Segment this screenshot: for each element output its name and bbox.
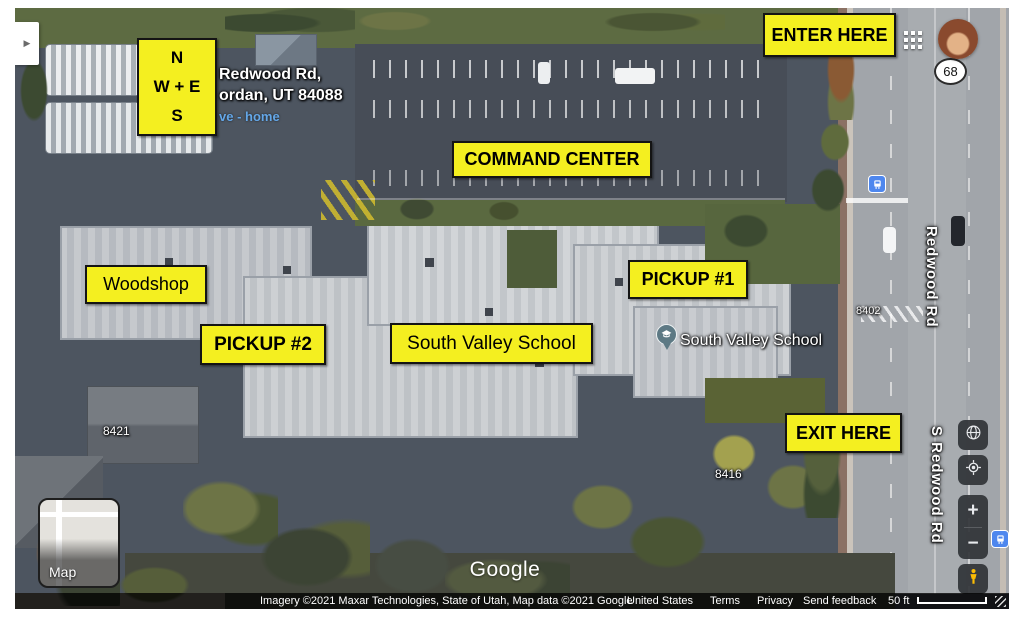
scale-bar [917,597,987,604]
stop-line [846,198,908,203]
school-place-marker[interactable] [656,324,677,345]
privacy-link[interactable]: Privacy [757,595,793,607]
annotation-south-valley-school: South Valley School [390,323,593,364]
scale-label[interactable]: 50 ft [888,595,909,607]
tree [820,48,862,120]
parking-stalls [373,100,773,118]
annotation-pickup-1: PICKUP #1 [628,260,748,299]
zoom-control: + − [958,495,988,559]
small-roof-building [255,34,317,66]
house-number: 8402 [856,305,880,317]
chevron-right-icon: ▶ [24,38,31,49]
vehicle [538,62,550,84]
address-overlay: Redwood Rd, ordan, UT 84088 ve - home [219,64,343,127]
vehicle [883,227,896,253]
imagery-credit: Imagery ©2021 Maxar Technologies, State … [260,595,633,607]
compass-west-east: W + E [154,77,201,97]
route-badge-68: 68 [934,58,967,85]
zoom-in-button[interactable]: + [958,495,988,526]
house-number: 8416 [715,467,742,481]
route-number: 68 [943,64,957,79]
compass-south: S [171,106,182,126]
map-type-toggle[interactable]: Map [38,498,120,588]
street-label-s-redwood-rd: S Redwood Rd [928,426,945,578]
saved-place-link[interactable]: ve - home [219,106,343,127]
courtyard [507,230,557,288]
address-line1: Redwood Rd, [219,64,343,85]
tree [483,198,525,224]
attribution-bar: Imagery ©2021 Maxar Technologies, State … [15,593,1009,609]
parking-stalls [373,60,773,78]
apps-grid-icon [904,31,908,35]
annotation-compass: N W + E S [137,38,217,136]
terms-link[interactable]: Terms [710,595,740,607]
graduation-cap-icon [656,324,677,345]
sidebar-expand-button[interactable]: ▶ [15,22,39,65]
street-label-redwood-rd: Redwood Rd [923,226,940,344]
annotation-exit-here: EXIT HERE [785,413,902,453]
google-watermark: Google [435,558,575,582]
zoom-out-button[interactable]: − [958,528,988,559]
tree [255,516,370,598]
annotation-woodshop: Woodshop [85,265,207,304]
tree [605,8,725,36]
crosswalk-yellow [321,180,375,220]
curb-line [357,198,785,200]
resize-handle[interactable] [995,596,1006,607]
country-label: United States [627,595,693,607]
globe-icon [965,424,982,446]
annotation-command-center: COMMAND CENTER [452,141,652,178]
tree [715,208,777,254]
vehicle [615,68,655,84]
bus-stop-icon[interactable] [868,175,886,193]
satellite-layer-button[interactable] [958,420,988,450]
my-location-icon [965,459,982,481]
annotation-pickup-2: PICKUP #2 [200,324,326,365]
place-marker-label[interactable]: South Valley School [680,332,822,350]
bus-stop-icon[interactable] [991,530,1009,548]
map-type-label: Map [49,564,76,580]
send-feedback-link[interactable]: Send feedback [803,595,876,607]
compass-north: N [171,48,183,68]
my-location-button[interactable] [958,455,988,485]
annotation-enter-here: ENTER HERE [763,13,896,57]
pegman-button[interactable] [958,564,988,594]
pegman-icon [966,568,981,590]
google-apps-button[interactable] [901,28,925,52]
tree [805,160,851,220]
tree [345,8,445,34]
house-number: 8421 [103,424,130,438]
account-avatar[interactable] [938,19,978,59]
tree [615,506,720,578]
address-line2: ordan, UT 84088 [219,85,343,106]
map-canvas[interactable]: ▶ Redwood Rd, ordan, UT 84088 ve - home … [15,8,1009,609]
vehicle [951,216,965,246]
